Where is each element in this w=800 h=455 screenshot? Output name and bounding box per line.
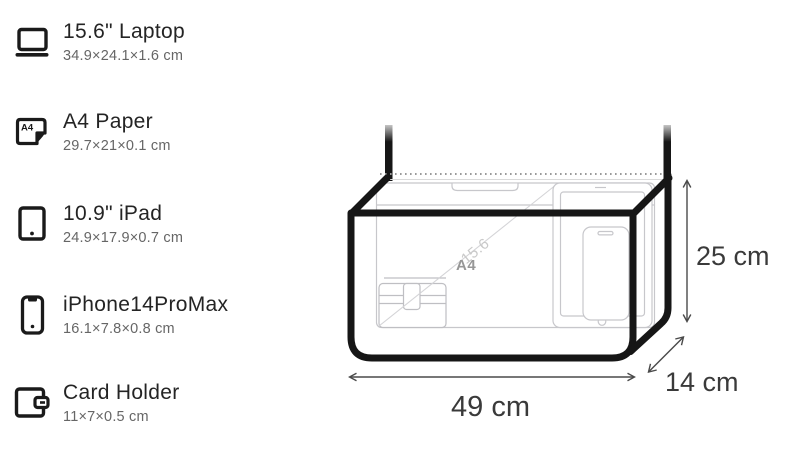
height-arrow	[683, 181, 691, 322]
dimension-infographic: 15.6" Laptop 34.9×24.1×1.6 cm A4 A4 Pape…	[0, 0, 800, 455]
width-arrow	[350, 373, 635, 381]
depth-dimension-label: 14 cm	[665, 369, 739, 396]
card-holder-outline	[379, 278, 446, 328]
height-dimension-label: 25 cm	[696, 243, 770, 270]
shoulder-strap-left	[385, 125, 393, 181]
width-dimension-label: 49 cm	[451, 393, 530, 422]
a4-paper-label: A4	[456, 258, 476, 273]
iphone-outline	[583, 227, 629, 320]
